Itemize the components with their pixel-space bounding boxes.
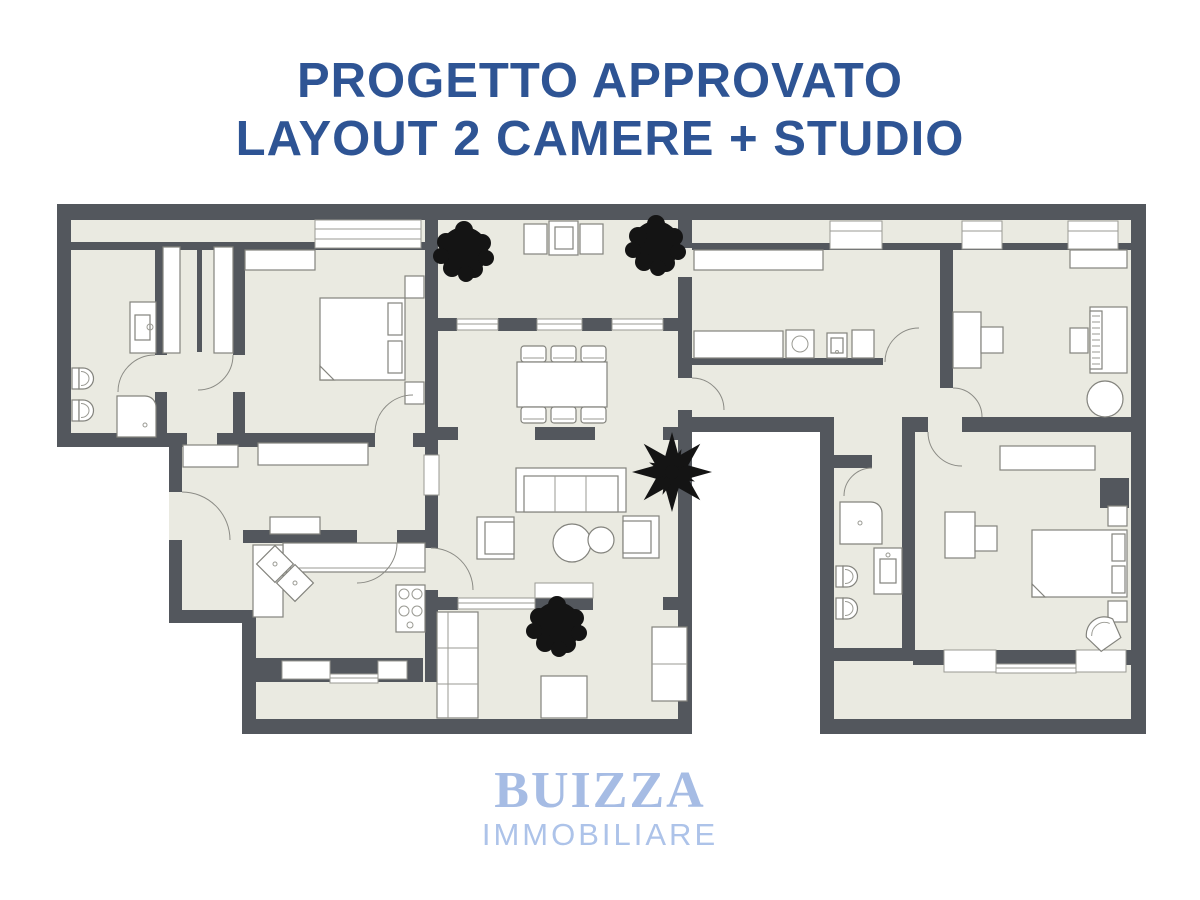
chair-icon: [581, 346, 606, 362]
nightstand-icon: [1108, 506, 1127, 526]
wardrobe-icon: [163, 247, 180, 353]
dining-table-icon: [517, 362, 607, 407]
balcony-seating-icon: [524, 221, 603, 255]
wardrobe-icon: [694, 250, 823, 270]
chair-icon: [581, 407, 606, 423]
outdoor-sofa-icon: [437, 612, 478, 718]
cabinet-icon: [270, 517, 320, 534]
armchair-icon: [477, 517, 514, 559]
wardrobe-icon: [245, 250, 315, 270]
nightstand-icon: [405, 382, 424, 404]
chair-icon: [521, 407, 546, 423]
wardrobe-icon: [214, 247, 233, 353]
wardrobe-icon: [258, 443, 368, 465]
sofa-icon: [516, 468, 626, 512]
armchair-icon: [623, 516, 659, 558]
chair-icon: [551, 346, 576, 362]
stool-icon: [1070, 328, 1088, 353]
wardrobe-icon: [1070, 250, 1127, 268]
gas-hob-icon: [396, 585, 425, 632]
toilet-icon: [836, 566, 858, 587]
floorplan-page: PROGETTO APPROVATO LAYOUT 2 CAMERE + STU…: [0, 0, 1200, 900]
shower-icon: [840, 502, 882, 544]
window-icon: [962, 221, 1002, 249]
sink-icon: [130, 302, 156, 353]
sink-icon: [874, 548, 902, 594]
window-icon: [457, 319, 498, 330]
shower-icon: [117, 396, 156, 437]
wardrobe-icon: [1000, 446, 1095, 470]
window-icon: [612, 319, 663, 330]
outdoor-sofa-icon: [652, 627, 687, 701]
agency-logo: BUIZZA IMMOBILIARE: [0, 765, 1200, 853]
double-bed-icon: [320, 298, 405, 380]
logo-subtitle: IMMOBILIARE: [0, 817, 1200, 853]
round-table-icon: [1087, 381, 1123, 417]
bidet-icon: [72, 400, 94, 421]
outdoor-table-icon: [541, 676, 587, 718]
toilet-icon: [72, 368, 94, 389]
chair-icon: [521, 346, 546, 362]
coffee-table-icon: [588, 527, 614, 553]
double-bed-icon: [1032, 530, 1127, 597]
window-icon: [830, 221, 882, 249]
wardrobe-icon: [183, 445, 238, 467]
chair-icon: [551, 407, 576, 423]
nightstand-icon: [405, 276, 424, 298]
logo-brand: BUIZZA: [0, 765, 1200, 817]
washing-machine-icon: [786, 330, 814, 358]
cabinet-icon: [852, 330, 874, 358]
star-plant-icon: [632, 432, 712, 512]
sink-icon: [827, 333, 847, 358]
window-icon: [315, 220, 421, 248]
window-icon: [1068, 221, 1118, 249]
wall-niche: [424, 455, 439, 495]
bidet-icon: [836, 598, 858, 619]
counter-icon: [694, 331, 783, 358]
coffee-table-icon: [553, 524, 591, 562]
window-icon: [537, 319, 582, 330]
